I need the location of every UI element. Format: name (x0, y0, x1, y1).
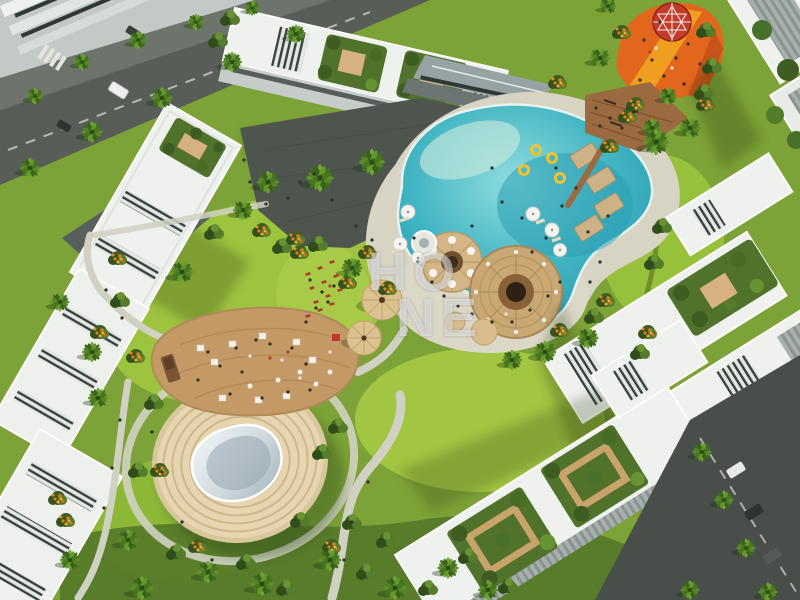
aerial-render: HO NE (0, 0, 800, 600)
aerial-render-canvas (0, 0, 800, 600)
event-plaza-deck (152, 308, 359, 416)
red-stall (332, 334, 340, 341)
